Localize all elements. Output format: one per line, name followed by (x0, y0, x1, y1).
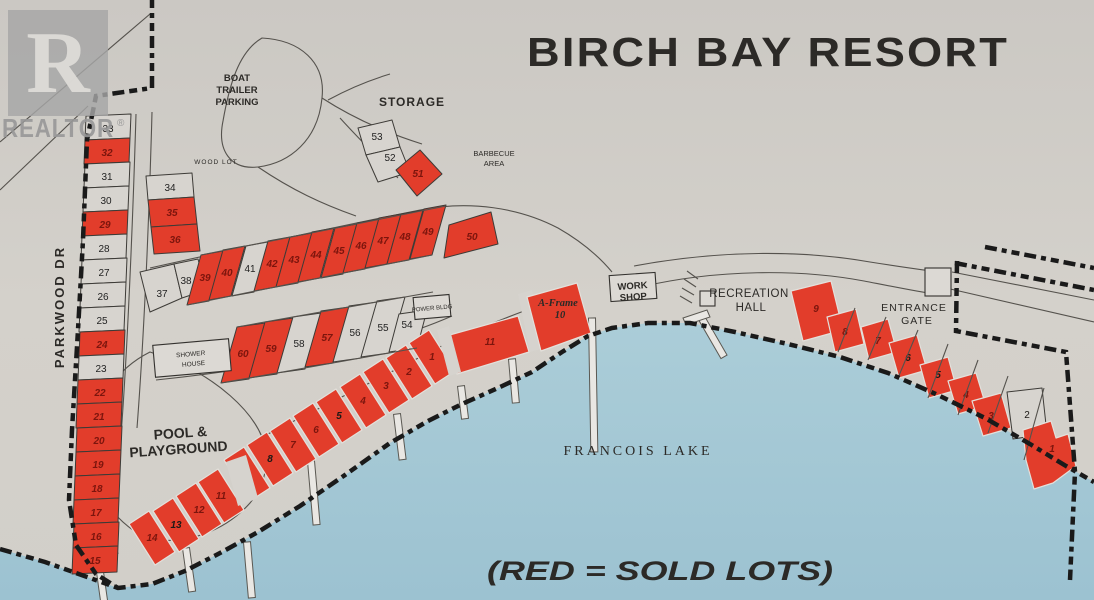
lot-number: 35 (166, 208, 178, 219)
svg-text:TRAILER: TRAILER (216, 85, 257, 96)
lot-17-sold: 17 (73, 498, 119, 524)
lot-18-sold: 18 (74, 474, 120, 500)
page-title: BIRCH BAY RESORT (527, 29, 1009, 75)
lot-24-sold: 24 (79, 330, 125, 356)
lot-number: 11 (485, 337, 496, 348)
lot-number: 43 (287, 255, 300, 266)
boat-trailer-parking-label: BOAT (224, 73, 250, 84)
lot-number: 20 (92, 436, 105, 447)
lot-number: 49 (421, 227, 434, 238)
realtor-logo: R REALTOR ® (2, 10, 125, 143)
recreation-hall-label: RECREATION (709, 288, 789, 300)
lot-number: 19 (92, 460, 104, 471)
lot-28: 28 (81, 234, 127, 260)
lot-34: 34 (146, 173, 194, 200)
lot-number: 34 (164, 183, 176, 194)
barbecue-area-label: BARBECUE (473, 149, 514, 158)
lot-number: 40 (220, 268, 233, 279)
lot-number: 59 (265, 344, 277, 355)
lot-number: 17 (90, 508, 102, 519)
lot-19-sold: 19 (75, 450, 121, 476)
lot-26: 26 (80, 282, 126, 308)
realtor-r-icon: R (26, 15, 91, 112)
lot-number: 4 (359, 396, 366, 407)
lot-number: 23 (95, 364, 107, 375)
lot-number: 11 (216, 491, 227, 502)
lot-27: 27 (81, 258, 127, 284)
lot-number: 57 (321, 333, 333, 344)
lot-35-sold: 35 (148, 197, 197, 227)
lot-number: 13 (170, 520, 182, 531)
lot-number: 38 (180, 276, 192, 287)
lot-number: 1 (429, 352, 435, 363)
lot-16-sold: 16 (73, 522, 119, 548)
svg-text:PARKING: PARKING (215, 97, 258, 108)
lot-number: 60 (237, 349, 249, 360)
lot-30: 30 (83, 186, 129, 212)
lot-number: 41 (244, 264, 256, 275)
svg-text:AREA: AREA (484, 159, 504, 168)
svg-text:10: 10 (555, 310, 566, 321)
lot-number: 3 (383, 381, 389, 392)
lot-number: 8 (267, 454, 273, 465)
lot-number: 26 (97, 292, 109, 303)
lot-number: 6 (313, 425, 319, 436)
lot-number: 22 (93, 388, 106, 399)
lot-number: 52 (384, 153, 396, 164)
lot-29-sold: 29 (82, 210, 128, 236)
lot-number: 7 (290, 440, 296, 451)
lake-label: FRANCOIS LAKE (563, 444, 712, 459)
resort-plot-map: 3332313029282726252423222120191817161534… (0, 0, 1094, 600)
lot-number: 18 (91, 484, 103, 495)
entrance-gate-building (925, 268, 951, 296)
lot-number: 53 (371, 132, 383, 143)
svg-text:GATE: GATE (901, 315, 933, 327)
lot-number: 32 (101, 148, 113, 159)
lot-number: 2 (1024, 410, 1030, 421)
lot-number: 54 (401, 320, 413, 331)
lot-number: 29 (98, 220, 111, 231)
lot-number: 28 (98, 244, 110, 255)
lot-number: 36 (169, 235, 181, 246)
lot-number: 37 (156, 289, 168, 300)
legend-red-sold: (RED = SOLD LOTS) (487, 556, 833, 586)
lot-number: 50 (466, 232, 478, 243)
lot-number: 9 (813, 304, 819, 315)
lot-number: 45 (332, 246, 345, 257)
lot-number: 14 (146, 533, 158, 544)
registered-trademark-icon: ® (117, 118, 125, 129)
lot-number: 25 (96, 316, 108, 327)
lot-number: 27 (98, 268, 110, 279)
lot-number: 5 (336, 411, 342, 422)
svg-text:SHOP: SHOP (619, 291, 647, 304)
lot-number: 55 (377, 323, 389, 334)
a-frame-label: A-Frame (537, 298, 578, 309)
lot-36-sold: 36 (151, 224, 200, 254)
entrance-gate-label: ENTRANCE (881, 302, 947, 314)
lot-number: 48 (398, 232, 411, 243)
lot-31: 31 (84, 162, 130, 188)
lot-number: 39 (199, 273, 211, 284)
lot-number: 47 (376, 236, 389, 247)
lot-number: 15 (89, 556, 101, 567)
lot-20-sold: 20 (76, 426, 122, 452)
lot-number: 51 (412, 169, 424, 180)
lot-number: 16 (90, 532, 102, 543)
lot-number: 1 (1049, 444, 1055, 455)
lot-number: 56 (349, 328, 361, 339)
lot-number: 42 (265, 259, 278, 270)
lot-22-sold: 22 (77, 378, 123, 404)
lot-number: 12 (193, 505, 205, 516)
lot-number: 2 (405, 367, 412, 378)
map-canvas: 3332313029282726252423222120191817161534… (0, 0, 1094, 600)
parkwood-dr-label: PARKWOOD DR (52, 246, 67, 368)
lot-number: 44 (309, 250, 322, 261)
lot-number: 21 (92, 412, 105, 423)
lot-25: 25 (79, 306, 125, 332)
lot-number: 30 (100, 196, 112, 207)
shower-house-building (153, 339, 231, 378)
storage-label: STORAGE (379, 95, 445, 109)
lot-23: 23 (78, 354, 124, 380)
wood-lot-label: WOOD LOT (194, 159, 237, 166)
realtor-brand-text: REALTOR (2, 113, 114, 143)
lot-number: 46 (354, 241, 367, 252)
lot-number: 58 (293, 339, 305, 350)
lot-number: 24 (95, 340, 108, 351)
lot-21-sold: 21 (76, 402, 122, 428)
lot-number: 31 (101, 172, 113, 183)
svg-text:HALL: HALL (736, 302, 767, 314)
